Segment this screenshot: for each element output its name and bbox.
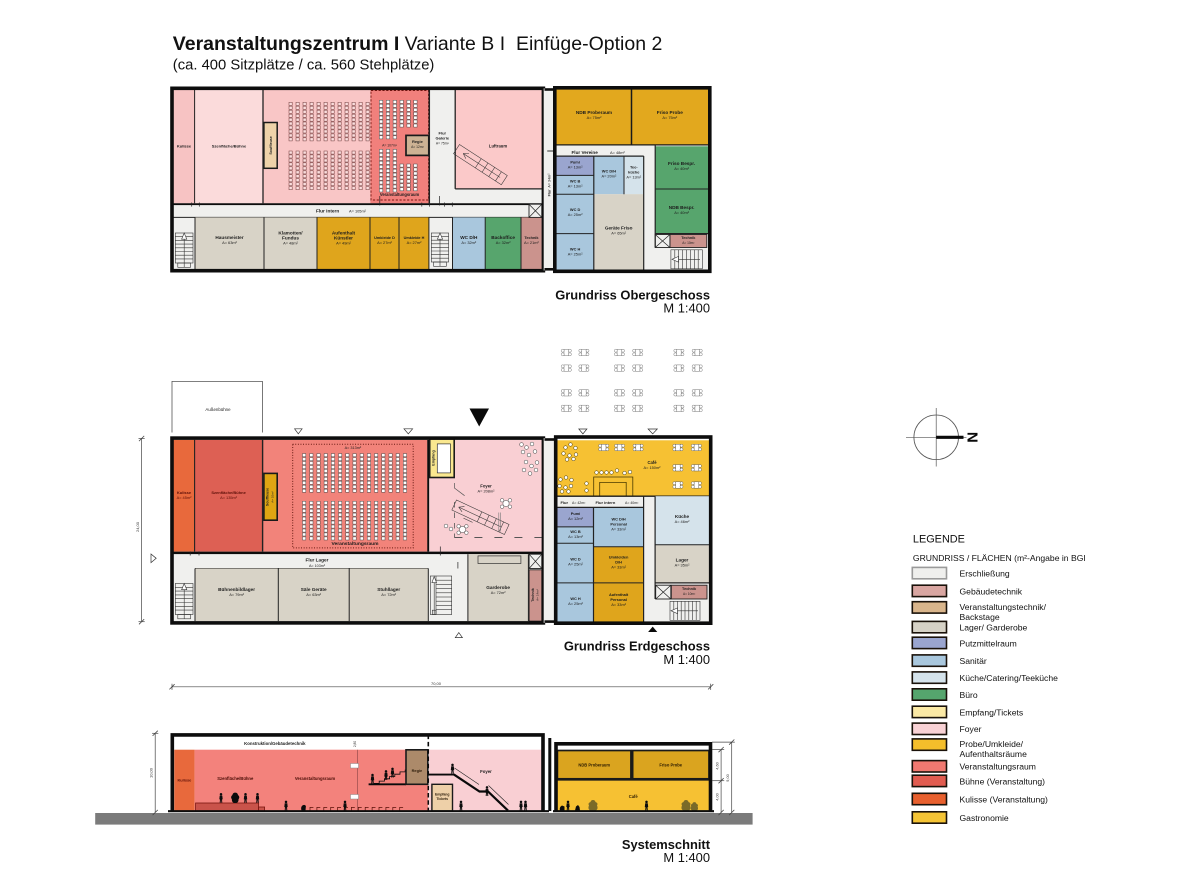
svg-text:A= 33m²: A= 33m² [611,564,627,569]
svg-text:Souffleuse: Souffleuse [266,488,270,506]
svg-text:A= 10m²: A= 10m² [683,592,695,596]
svg-text:Veranstaltungsraum: Veranstaltungsraum [295,776,336,781]
svg-text:M 1:400: M 1:400 [663,652,710,667]
svg-text:A= 14m²: A= 14m² [536,589,540,601]
svg-text:70,00: 70,00 [431,681,442,686]
svg-text:A= 10m²: A= 10m² [682,241,694,245]
svg-text:2,80: 2,80 [353,741,357,747]
svg-text:Gastronomie: Gastronomie [960,813,1009,823]
svg-text:Kulisse (Veranstaltung): Kulisse (Veranstaltung) [960,794,1049,804]
svg-text:Foyer: Foyer [960,724,982,734]
svg-text:Küche/Catering/Teeküche: Küche/Catering/Teeküche [960,673,1059,683]
svg-text:Empfang/Tickets: Empfang/Tickets [960,707,1024,717]
svg-text:A= 45m²: A= 45m² [177,495,193,500]
svg-text:A= 72m²: A= 72m² [381,592,397,597]
svg-text:A= 20m²: A= 20m² [601,173,617,178]
svg-text:Probe/Umkleide/: Probe/Umkleide/ [960,739,1024,749]
svg-text:A= 105m²: A= 105m² [349,209,367,214]
svg-text:Souffleuse: Souffleuse [269,136,273,154]
svg-text:A= 27m²: A= 27m² [377,240,393,245]
svg-text:A= 12m²: A= 12m² [411,145,424,149]
svg-text:A= 65m²: A= 65m² [611,230,627,235]
svg-text:Sanitär: Sanitär [960,656,987,666]
svg-text:Regie: Regie [412,768,423,773]
svg-text:Kulisse: Kulisse [177,778,192,783]
svg-text:Flur: Flur [561,500,569,505]
svg-text:A= 313m²: A= 313m² [345,446,362,450]
svg-text:Technik: Technik [682,587,697,591]
svg-text:A= 40m²: A= 40m² [625,501,639,505]
svg-text:Veranstaltungstechnik/: Veranstaltungstechnik/ [960,602,1047,612]
svg-text:Empfang: Empfang [432,450,436,465]
svg-text:A= 75m²: A= 75m² [662,115,678,120]
svg-text:Flur Lager: Flur Lager [306,558,329,563]
svg-text:Tickets: Tickets [436,797,448,801]
svg-text:9,00: 9,00 [726,774,730,781]
svg-text:Regie: Regie [412,139,424,144]
svg-text:4,60: 4,60 [716,762,720,769]
svg-text:Kulisse: Kulisse [177,143,192,148]
svg-text:Konstruktion/Gebäudetechnik: Konstruktion/Gebäudetechnik [244,741,306,746]
svg-text:A= 48m²: A= 48m² [283,240,299,245]
svg-text:A= 27m²: A= 27m² [407,240,423,245]
svg-text:A= 10m²: A= 10m² [271,491,275,502]
svg-text:A= 135m²: A= 135m² [220,495,238,500]
svg-text:A= 63m²: A= 63m² [306,592,322,597]
svg-text:Luftraum: Luftraum [489,144,507,149]
svg-text:Flur intern: Flur intern [596,500,616,505]
svg-text:Bühne (Veranstaltung): Bühne (Veranstaltung) [960,776,1046,786]
svg-text:A= 32m²: A= 32m² [461,240,477,245]
svg-text:A= 150m²: A= 150m² [644,465,662,470]
svg-text:Gebäudetechnik: Gebäudetechnik [960,586,1023,596]
svg-text:Empfang: Empfang [435,793,450,797]
svg-text:A= 13m²: A= 13m² [568,534,584,539]
svg-text:Flur Vereine: Flur Vereine [572,150,599,155]
svg-text:GRUNDRISS / FLÄCHEN (m²-Angabe: GRUNDRISS / FLÄCHEN (m²-Angabe in BGI [913,553,1086,563]
svg-text:A= 13m²: A= 13m² [568,164,584,169]
svg-text:Szenfläche/Bühne: Szenfläche/Bühne [217,776,254,781]
svg-text:Außenbühne: Außenbühne [205,407,231,412]
svg-text:N: N [964,432,981,443]
svg-text:A= 103m²: A= 103m² [309,564,326,568]
svg-text:Foyer: Foyer [480,769,492,774]
svg-text:A= 12m²: A= 12m² [568,516,584,521]
svg-text:Flur intern: Flur intern [316,209,339,214]
svg-text:A= 75m²: A= 75m² [587,115,603,120]
svg-text:(ca. 400 Sitzplätze / ca. 560: (ca. 400 Sitzplätze / ca. 560 Stehplätze… [173,58,435,74]
svg-text:A= 35m²: A= 35m² [675,562,691,567]
svg-text:A= 107m²: A= 107m² [382,144,398,148]
svg-text:A= 13m²: A= 13m² [568,183,584,188]
svg-text:Veranstaltungsraum: Veranstaltungsraum [380,192,420,197]
svg-text:Galerie: Galerie [436,135,450,140]
svg-text:Szenfläche/Bühne: Szenfläche/Bühne [212,143,247,148]
svg-text:A= 25m²: A= 25m² [568,251,584,256]
svg-text:A= 75m²: A= 75m² [436,141,450,145]
svg-text:A= 208m²: A= 208m² [478,488,496,493]
svg-text:Friso Probe: Friso Probe [659,763,682,768]
svg-text:Technik: Technik [531,587,535,602]
svg-text:A= 72m²: A= 72m² [491,590,507,595]
svg-text:Erschließung: Erschließung [960,569,1010,579]
svg-text:A= 63m²: A= 63m² [222,240,238,245]
svg-text:Backstage: Backstage [960,612,1000,622]
svg-text:A= 25m²: A= 25m² [568,561,584,566]
svg-text:M 1:400: M 1:400 [663,850,710,865]
svg-text:A= 33m²: A= 33m² [611,526,627,531]
svg-text:Technik: Technik [681,236,696,240]
svg-text:A= 49m²: A= 49m² [336,240,352,245]
svg-text:Café: Café [629,794,639,799]
svg-text:Lager/ Garderobe: Lager/ Garderobe [960,623,1028,633]
svg-text:A= 42m²: A= 42m² [572,501,586,505]
svg-text:Veranstaltungszentrum I Varian: Veranstaltungszentrum I Variante B I Ein… [173,33,663,55]
svg-text:Veranstaltungsraum: Veranstaltungsraum [960,762,1036,772]
svg-text:4,00: 4,00 [716,793,720,800]
svg-text:Veranstaltungsraum: Veranstaltungsraum [331,541,379,547]
svg-text:10,00: 10,00 [148,767,153,778]
svg-text:A= 48m²: A= 48m² [610,150,626,155]
svg-text:M 1:400: M 1:400 [663,301,710,316]
svg-text:A= 25m²: A= 25m² [568,212,584,217]
svg-text:A= 40m²: A= 40m² [674,166,690,171]
svg-text:24,00: 24,00 [135,521,140,532]
svg-text:A= 46m²: A= 46m² [675,519,691,524]
svg-text:A= 13m²: A= 13m² [626,174,642,179]
svg-text:A= 40m²: A= 40m² [674,210,690,215]
svg-text:Flur A= 34m²: Flur A= 34m² [547,173,551,197]
svg-text:A= 79m²: A= 79m² [229,592,245,597]
svg-text:Aufenthaltsräume: Aufenthaltsräume [960,749,1028,759]
svg-text:LEGENDE: LEGENDE [913,534,965,546]
svg-text:Putzmittelraum: Putzmittelraum [960,638,1017,648]
svg-text:A= 33m²: A= 33m² [611,602,627,607]
svg-text:Büro: Büro [960,690,978,700]
svg-text:A= 25m²: A= 25m² [568,601,584,606]
svg-text:A= 21m²: A= 21m² [524,240,540,245]
svg-text:NDB Proberaum: NDB Proberaum [578,763,610,768]
svg-text:A= 32m²: A= 32m² [496,240,512,245]
